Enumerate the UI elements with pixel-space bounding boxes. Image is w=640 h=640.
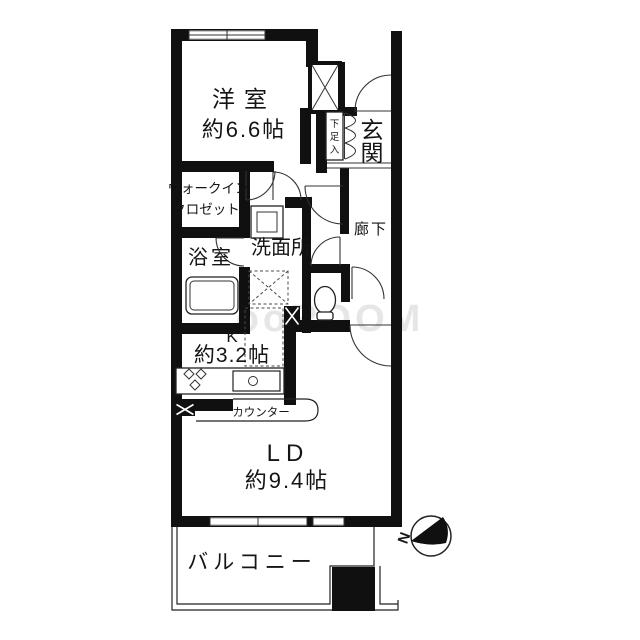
- compass: N: [395, 516, 451, 556]
- counter-label: カウンター: [232, 406, 290, 419]
- entrance-char-2: 関: [361, 140, 384, 166]
- balcony-label: バルコニー: [187, 551, 317, 574]
- wic-label-line1: ウォークイン: [168, 181, 249, 196]
- wall-westernroom-bottom: [171, 161, 274, 172]
- western-room-label: 洋室: [212, 86, 276, 112]
- wic-door: [246, 171, 275, 200]
- toilet-door: [352, 267, 384, 299]
- balcony-pillar: [332, 567, 375, 611]
- washroom-inner-door: [311, 237, 340, 266]
- kitchen-size: 約3.2帖: [194, 344, 270, 367]
- wall-toilet-right: [341, 264, 350, 302]
- wall-shaft-below: [300, 108, 311, 164]
- floorplan-drawing: ooROOM: [0, 0, 640, 640]
- pipe-shaft-icon: [310, 63, 340, 112]
- bathroom-label: 浴室: [188, 246, 234, 269]
- window-western-room: [189, 30, 265, 40]
- wall-kitchen-right: [284, 318, 296, 405]
- shoe-char-1: 下: [330, 119, 340, 130]
- wall-wic-bottom: [171, 227, 250, 238]
- floorplan-page: ooROOM: [0, 0, 640, 640]
- entrance-door: [355, 75, 391, 111]
- window-ld-right: [313, 517, 344, 526]
- shoe-closet-label: 下 足 入: [330, 119, 340, 156]
- bathtub-icon: [186, 277, 238, 314]
- western-room-size: 約6.6帖: [202, 117, 287, 142]
- shoe-char-3: 入: [330, 145, 340, 156]
- ld-label: LD: [267, 440, 310, 467]
- western-room-door: [273, 172, 301, 200]
- entrance-label: 玄 関: [361, 117, 384, 166]
- toilet-icon: [315, 287, 336, 321]
- window-ld-left: [210, 517, 307, 526]
- vanity-icon: [251, 206, 283, 238]
- hallway-label: 廊下: [354, 221, 388, 238]
- washroom-label: 洗面所: [251, 236, 311, 259]
- shoe-char-2: 足: [330, 132, 340, 143]
- trifold-door-icon: [345, 113, 356, 159]
- ld-size: 約9.4帖: [245, 468, 330, 493]
- wall-bath-bottom: [171, 323, 250, 334]
- wall-duct-icon: [175, 403, 195, 416]
- wic-label-line2: クロゼット: [172, 202, 240, 217]
- wall-right: [391, 31, 402, 527]
- wall-left: [171, 29, 182, 527]
- duct-icon: [284, 306, 300, 326]
